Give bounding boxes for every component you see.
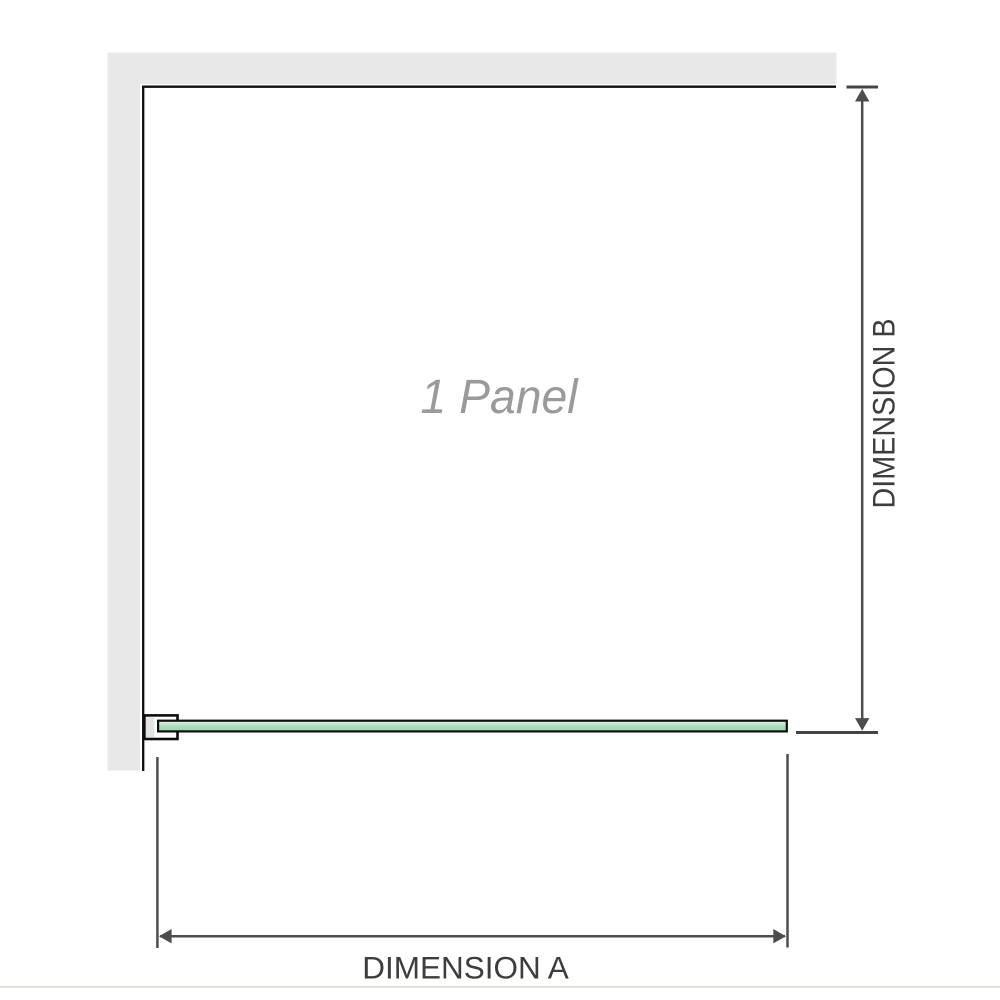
svg-text:1 Panel: 1 Panel bbox=[421, 371, 579, 424]
svg-text:DIMENSION A: DIMENSION A bbox=[362, 950, 569, 986]
svg-text:DIMENSION B: DIMENSION B bbox=[866, 319, 902, 509]
